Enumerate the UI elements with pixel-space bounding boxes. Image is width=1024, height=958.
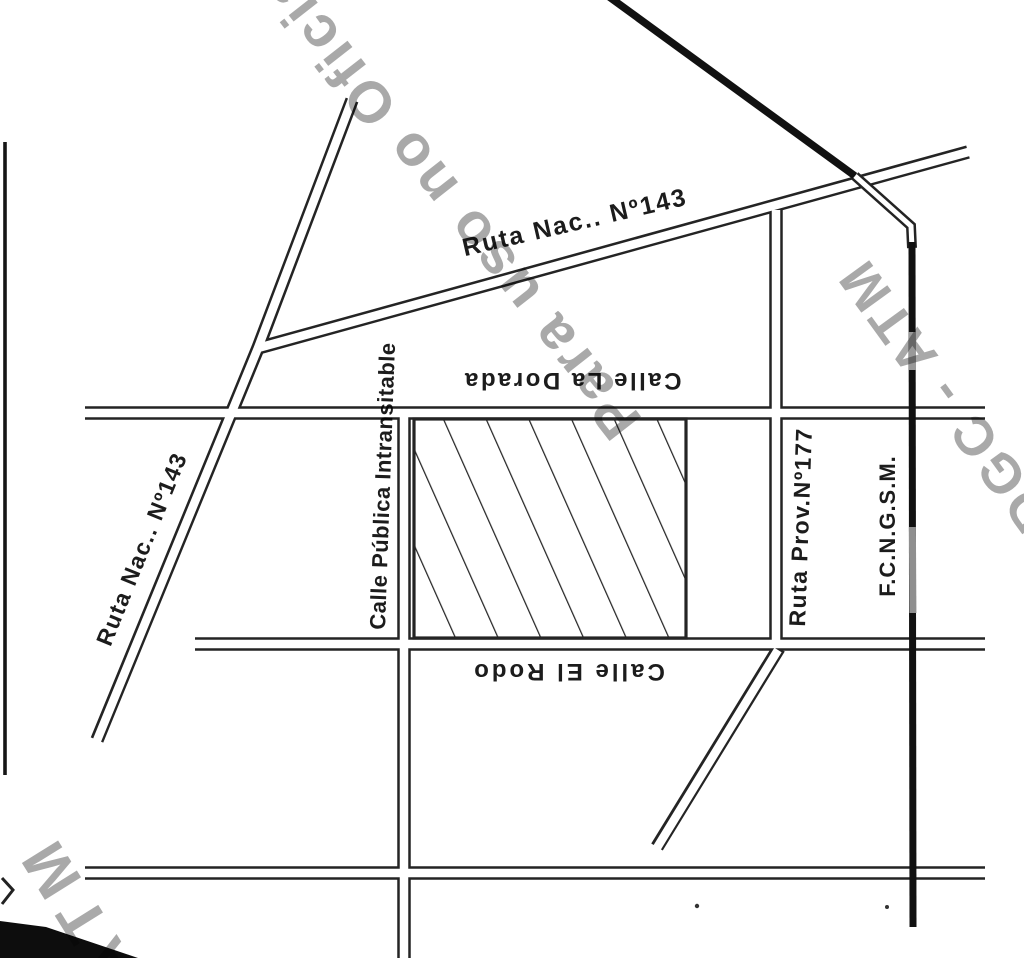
scan-speck xyxy=(885,905,889,909)
cadastral-sketch-map: Ruta Nac.. Nº143 Ruta Nac.. Nº143 Calle … xyxy=(0,0,1024,958)
label-railway-fcngsm: F.C.N.G.S.M. xyxy=(875,455,901,597)
scan-speck xyxy=(695,904,699,908)
railway-bend-core xyxy=(855,176,912,248)
parcel-hatching xyxy=(416,421,685,637)
map-drawing xyxy=(0,0,1024,958)
railway-diagonal-segment xyxy=(608,0,855,176)
subject-parcel xyxy=(414,419,686,638)
railway-scan-fade-2 xyxy=(912,527,913,613)
label-calle-el-rodo: Calle El Rodo xyxy=(471,657,665,685)
edge-mark xyxy=(2,878,13,904)
road-south-branch-core xyxy=(655,650,778,851)
